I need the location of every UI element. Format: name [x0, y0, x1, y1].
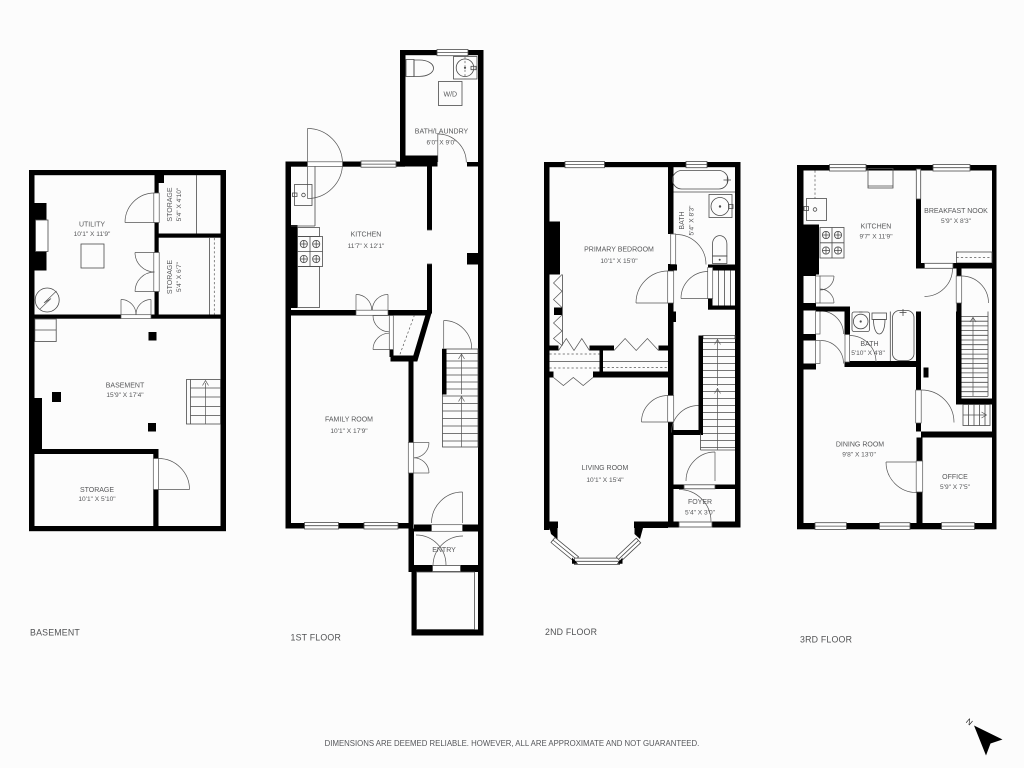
- svg-text:1ST FLOOR: 1ST FLOOR: [291, 633, 342, 643]
- svg-text:2ND FLOOR: 2ND FLOOR: [545, 627, 597, 637]
- svg-text:KITCHEN: KITCHEN: [861, 224, 892, 231]
- svg-text:DIMENSIONS ARE DEEMED RELIABLE: DIMENSIONS ARE DEEMED RELIABLE. HOWEVER,…: [325, 739, 700, 748]
- svg-text:DINING ROOM: DINING ROOM: [836, 442, 884, 449]
- svg-text:FAMILY ROOM: FAMILY ROOM: [325, 417, 373, 424]
- svg-text:9'8" X 13'0": 9'8" X 13'0": [842, 452, 876, 459]
- svg-text:STORAGE: STORAGE: [167, 260, 174, 294]
- svg-text:LIVING ROOM: LIVING ROOM: [582, 465, 629, 472]
- svg-text:BATH: BATH: [860, 341, 878, 348]
- svg-text:W/D: W/D: [443, 91, 457, 98]
- svg-text:5'9" X 7'5": 5'9" X 7'5": [940, 484, 971, 491]
- svg-text:BREAKFAST NOOK: BREAKFAST NOOK: [924, 208, 988, 215]
- svg-text:OFFICE: OFFICE: [942, 474, 968, 481]
- svg-text:FOYER: FOYER: [688, 499, 712, 506]
- svg-text:9'7" X 11'9": 9'7" X 11'9": [859, 234, 893, 241]
- svg-text:15'9" X 17'4": 15'9" X 17'4": [106, 392, 144, 399]
- svg-text:5'4" X 4'10": 5'4" X 4'10": [176, 187, 183, 221]
- svg-text:BASEMENT: BASEMENT: [106, 383, 145, 390]
- svg-text:5'10" X 4'8": 5'10" X 4'8": [851, 350, 885, 357]
- svg-text:10'1" X 5'10": 10'1" X 5'10": [78, 496, 116, 503]
- svg-text:10'1" X 15'0": 10'1" X 15'0": [600, 258, 638, 265]
- svg-text:10'1" X 17'9": 10'1" X 17'9": [330, 428, 368, 435]
- svg-text:PRIMARY BEDROOM: PRIMARY BEDROOM: [584, 247, 654, 254]
- svg-text:5'4" X 8'3": 5'4" X 8'3": [689, 205, 696, 236]
- svg-text:STORAGE: STORAGE: [80, 487, 114, 494]
- svg-text:5'4" X 3'0": 5'4" X 3'0": [685, 510, 716, 517]
- svg-text:5'9" X 8'3": 5'9" X 8'3": [941, 218, 972, 225]
- svg-text:5'4" X 6'7": 5'4" X 6'7": [176, 261, 183, 292]
- svg-text:3RD FLOOR: 3RD FLOOR: [800, 635, 852, 645]
- svg-text:10'1" X 15'4": 10'1" X 15'4": [586, 477, 624, 484]
- svg-text:UTILITY: UTILITY: [79, 222, 105, 229]
- svg-text:STORAGE: STORAGE: [167, 187, 174, 221]
- svg-text:BATH: BATH: [679, 211, 686, 229]
- svg-text:10'1" X 11'9": 10'1" X 11'9": [74, 231, 111, 238]
- svg-text:6'0" X 9'0": 6'0" X 9'0": [427, 140, 458, 147]
- svg-text:11'7" X 12'1": 11'7" X 12'1": [348, 243, 385, 250]
- svg-text:BASEMENT: BASEMENT: [30, 628, 80, 638]
- svg-text:KITCHEN: KITCHEN: [351, 232, 382, 239]
